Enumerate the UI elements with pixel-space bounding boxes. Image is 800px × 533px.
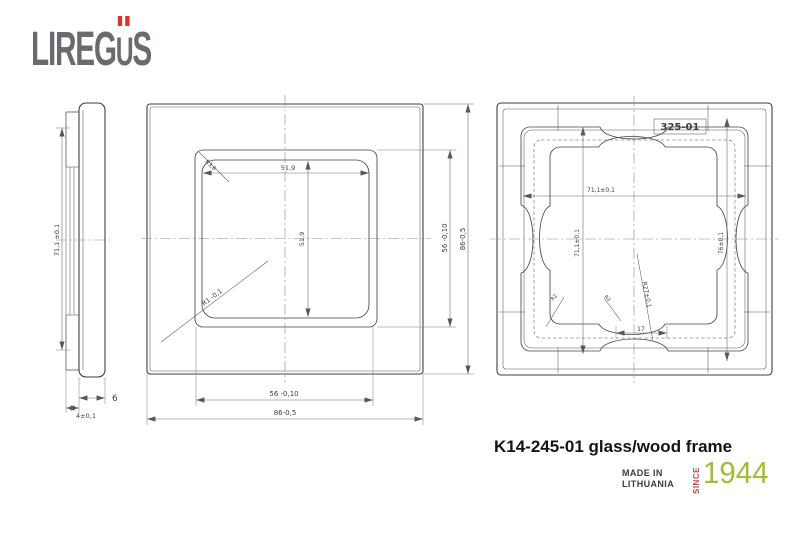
- dim-side-insert-depth: 4±0,1: [76, 412, 96, 420]
- dim-back-fillet-medium: R3: [603, 294, 612, 303]
- dim-corner-radius: R3,8: [204, 159, 217, 172]
- back-view: 325-01 71,1±0,1 71,1±0,1 76±0,1 R27±0,1 …: [490, 96, 779, 383]
- dim-overall-width: 86-0,5: [274, 409, 297, 417]
- made-in-label: MADE IN LITHUANIA: [622, 468, 674, 490]
- made-in-line2: LITHUANIA: [622, 479, 674, 490]
- side-view: 71,1 ±0,1 6 4±0,1: [53, 103, 118, 420]
- dim-back-notch-width: 17: [637, 326, 645, 333]
- front-window: [202, 160, 369, 318]
- drawing-sheet: LIREGUS 71,1: [0, 0, 800, 533]
- dim-window-width: 51,9: [281, 164, 295, 172]
- back-part-label: 325-01: [661, 122, 700, 133]
- made-in-line1: MADE IN: [622, 468, 674, 479]
- since-label: SINCE: [692, 466, 701, 494]
- dim-overall-height: 86-0,5: [459, 228, 467, 251]
- dim-back-inner-height: 71,1±0,1: [574, 229, 581, 257]
- side-hatch-top: [66, 112, 79, 167]
- dim-back-mount-height: 76±0,1: [718, 232, 725, 254]
- dim-aperture-width: 56 -0,10: [269, 390, 298, 398]
- dim-window-height: 51,9: [298, 232, 306, 246]
- dim-back-fillet-small: R2: [550, 293, 559, 302]
- dim-back-inner-width: 71,1±0,1: [587, 187, 615, 194]
- dim-back-radius-large: R27±0,1: [641, 281, 653, 308]
- dim-aperture-height: 56 -0,10: [441, 223, 449, 252]
- dim-side-height: 71,1 ±0,1: [53, 224, 61, 256]
- part-title: K14-245-01 glass/wood frame: [494, 437, 732, 457]
- side-insert-strip: [66, 112, 79, 370]
- founding-year: 1944: [703, 457, 769, 488]
- side-hatch-bottom: [66, 315, 79, 370]
- front-view: 51,9 51,9 R3,8 R1 -0,1 56 -0,10 86-0,5: [141, 95, 474, 425]
- dim-side-frame-depth: 6: [112, 394, 118, 404]
